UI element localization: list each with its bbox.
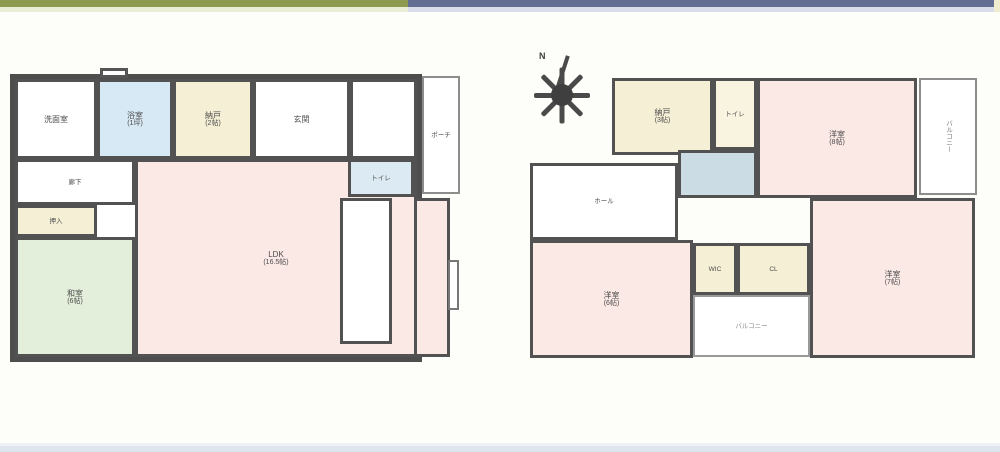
room-washitsu-1f: 和室 (6帖) bbox=[15, 237, 135, 357]
room-label: CL bbox=[769, 266, 777, 273]
room-label: ホール bbox=[594, 198, 614, 205]
header-bar-olive-light bbox=[0, 7, 408, 12]
header-bar-blue bbox=[408, 0, 1000, 7]
room-closet-2f: CL bbox=[737, 243, 810, 295]
room-wic-2f: WIC bbox=[693, 243, 737, 295]
room-washroom-1f: 洗面室 bbox=[15, 79, 97, 159]
header-bar-blue-light bbox=[408, 7, 1000, 12]
footer-strip bbox=[0, 446, 1000, 452]
room-ldk-east-1f bbox=[417, 198, 450, 357]
room-bedroom2-2f: 洋室 (6帖) bbox=[530, 240, 693, 358]
stairs-2f bbox=[678, 150, 757, 198]
room-size: (7帖) bbox=[885, 279, 901, 287]
room-label: 納戸 bbox=[205, 111, 221, 120]
room-label: 洋室 bbox=[604, 291, 620, 300]
room-hall-east-1f bbox=[350, 79, 417, 159]
header-bar-edge bbox=[994, 0, 1000, 12]
room-label: LDK bbox=[268, 250, 284, 259]
room-label: 押入 bbox=[50, 218, 63, 225]
north-label: N bbox=[539, 51, 546, 61]
room-label: バルコニー bbox=[735, 323, 767, 330]
room-corridor-1f: 廊下 bbox=[15, 159, 135, 205]
balcony-south-2f: バルコニー bbox=[693, 295, 810, 357]
room-label: 廊下 bbox=[69, 179, 82, 186]
room-label: バルコニー bbox=[944, 120, 953, 153]
room-toilet-2f: トイレ bbox=[713, 78, 757, 150]
room-label: 納戸 bbox=[655, 108, 671, 117]
room-hall-2f: ホール bbox=[530, 163, 678, 240]
room-storage-1f: 納戸 (2帖) bbox=[173, 79, 253, 159]
compass-rose: N bbox=[523, 53, 601, 141]
balcony-east-2f: バルコニー bbox=[919, 78, 977, 195]
room-storage-2f: 納戸 (3帖) bbox=[612, 78, 713, 155]
room-oshiire-1f: 押入 bbox=[15, 205, 97, 237]
room-bedroom3-2f: 洋室 (7帖) bbox=[810, 198, 975, 358]
room-size: (2帖) bbox=[205, 120, 221, 128]
bay-window-1f bbox=[448, 260, 459, 310]
room-toilet-1f: トイレ bbox=[348, 159, 414, 197]
room-bedroom1-2f: 洋室 (8帖) bbox=[757, 78, 917, 198]
room-size: (6帖) bbox=[67, 298, 83, 306]
1f-top-vent bbox=[100, 68, 128, 78]
room-label: ポーチ bbox=[431, 132, 451, 139]
room-label: 浴室 bbox=[127, 111, 143, 120]
room-size: (3帖) bbox=[655, 117, 671, 125]
room-size: (6帖) bbox=[604, 300, 620, 308]
room-label: 和室 bbox=[67, 289, 83, 298]
compass-hub bbox=[551, 84, 573, 106]
header-bar-olive bbox=[0, 0, 408, 7]
room-size: (8帖) bbox=[829, 139, 845, 147]
room-size: (16.5帖) bbox=[263, 259, 288, 267]
porch-1f: ポーチ bbox=[422, 76, 460, 194]
room-label: トイレ bbox=[371, 175, 391, 182]
room-label: 洋室 bbox=[885, 270, 901, 279]
room-label: WIC bbox=[709, 266, 722, 273]
room-size: (1坪) bbox=[127, 120, 143, 128]
floorplan-page: 洗面室 浴室 (1坪) 納戸 (2帖) 玄関 廊下 押入 和室 (6帖) LDK… bbox=[0, 0, 1000, 452]
room-entrance-1f: 玄関 bbox=[253, 79, 350, 159]
room-label: トイレ bbox=[725, 111, 745, 118]
room-label: 洗面室 bbox=[44, 115, 68, 124]
room-label: 玄関 bbox=[294, 115, 310, 124]
room-label: 洋室 bbox=[829, 130, 845, 139]
stairs-1f bbox=[340, 198, 392, 344]
room-bath-1f: 浴室 (1坪) bbox=[97, 79, 173, 159]
